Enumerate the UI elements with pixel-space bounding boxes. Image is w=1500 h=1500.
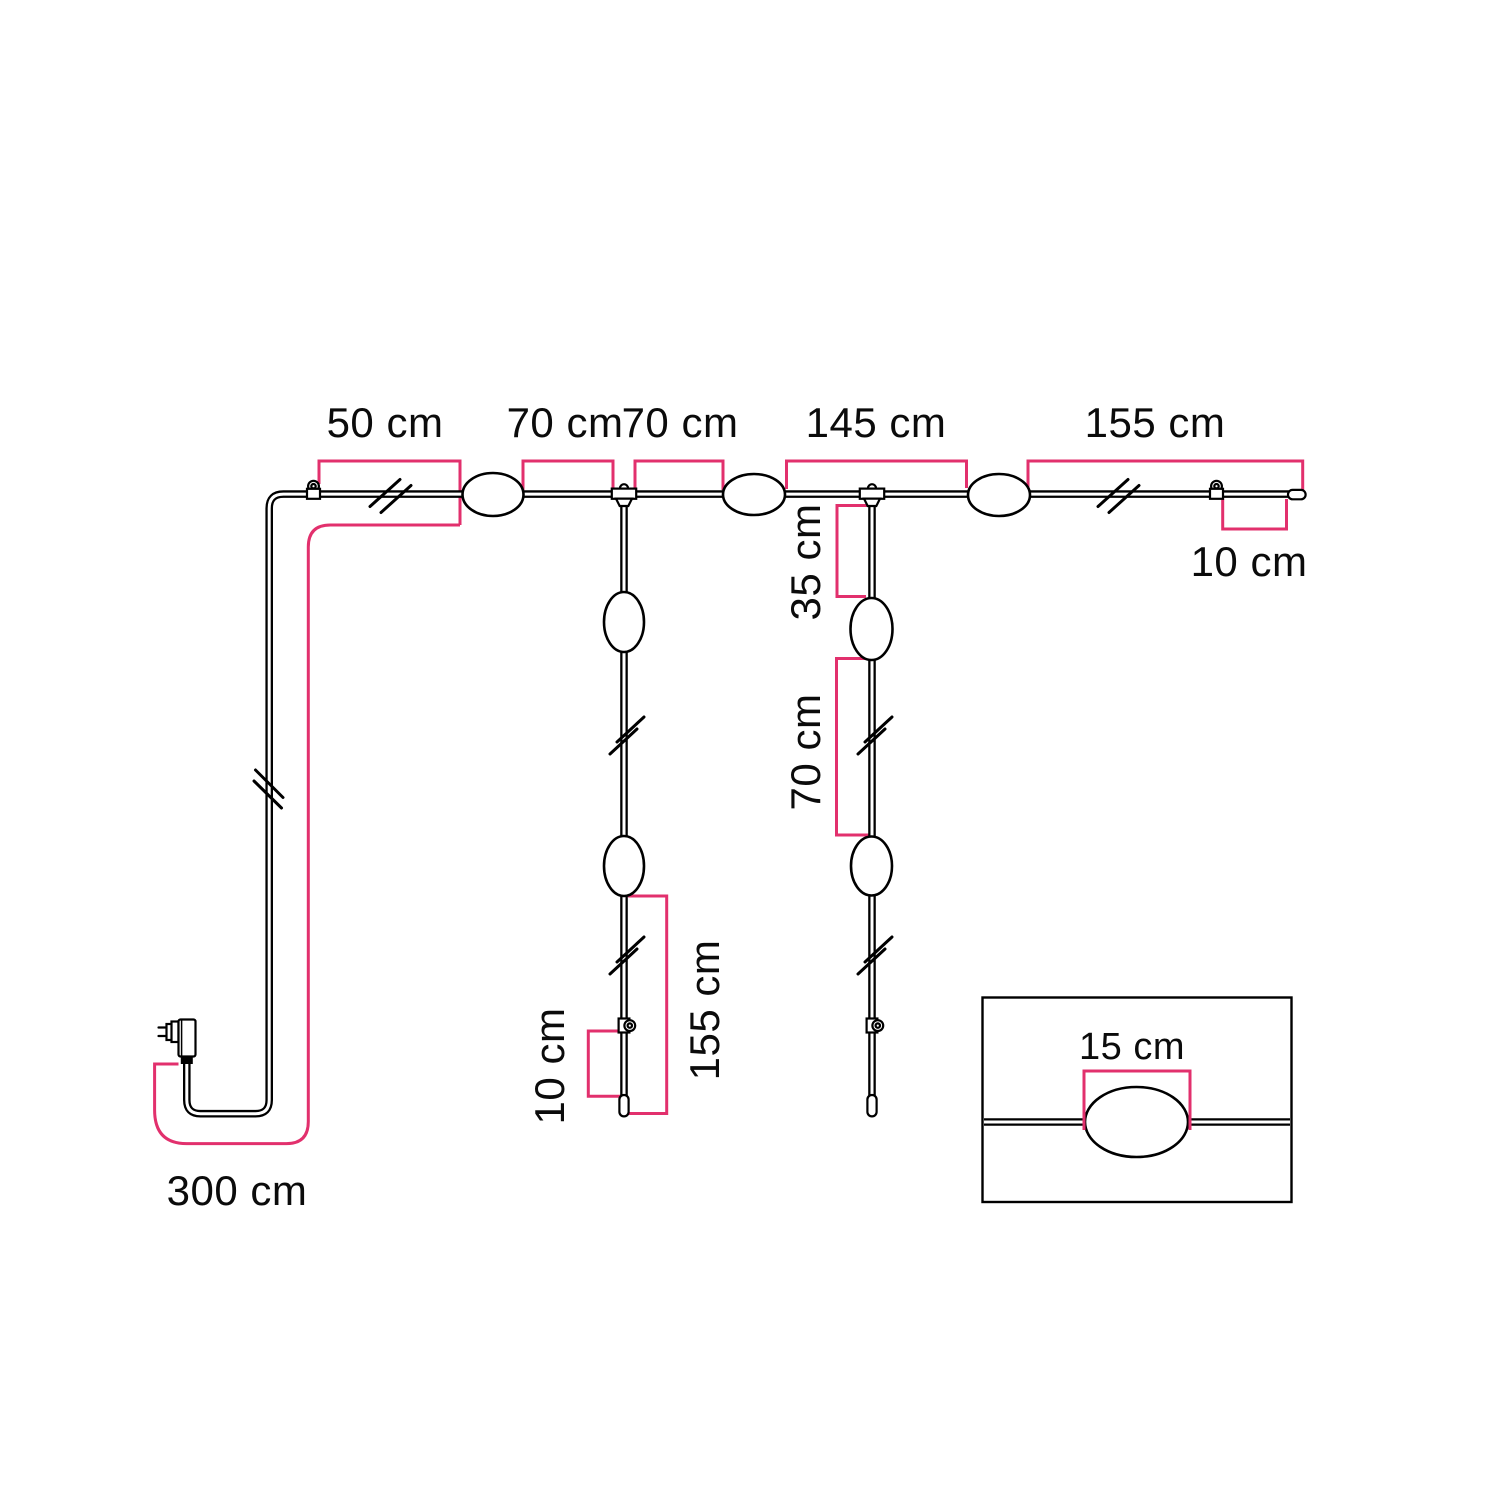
dim-label-300cm: 300 cm — [167, 1167, 308, 1214]
dim-label-70cm-b: 70 cm — [622, 399, 739, 446]
dim-bracket-155cm — [1028, 461, 1303, 490]
dim-label-155cm: 155 cm — [1085, 399, 1226, 446]
lamp-1 — [463, 473, 524, 516]
dim-label-10cm-drop: 10 cm — [526, 1008, 573, 1125]
wall-hook-right-icon — [1210, 481, 1223, 499]
end-cap-drop2 — [867, 1095, 876, 1116]
dim-path-300cm — [155, 525, 460, 1144]
drop1-clip-icon — [619, 1019, 636, 1033]
dim-label-70cm-drop: 70 cm — [782, 694, 829, 811]
dim-bracket-70cm-a — [523, 461, 613, 490]
dim-label-35cm-drop: 35 cm — [782, 504, 829, 621]
string-light-measurement-diagram: 15 cm 50 cm 70 cm 70 cm 145 cm 155 cm 10… — [0, 0, 1500, 1500]
dim-bracket-10cm-end — [1223, 499, 1287, 530]
drop2-lamp-upper — [851, 598, 893, 660]
dim-bracket-10cm-drop — [588, 1031, 621, 1096]
dim-label-155cm-drop: 155 cm — [681, 940, 728, 1081]
lamp-3 — [968, 474, 1030, 516]
dim-label-70cm-a: 70 cm — [507, 399, 624, 446]
dim-bracket-155cm-drop — [628, 896, 667, 1114]
lamp-2 — [723, 474, 785, 515]
drop1-lamp-upper — [604, 592, 644, 652]
diagram-canvas: 15 cm 50 cm 70 cm 70 cm 145 cm 155 cm 10… — [0, 0, 1500, 1500]
tee-connector-1-icon — [612, 484, 636, 506]
drop1-lamp-lower — [604, 836, 644, 896]
dim-bracket-145cm — [787, 461, 967, 489]
dim-label-10cm-end: 10 cm — [1191, 538, 1308, 585]
dim-label-50cm: 50 cm — [327, 399, 444, 446]
inset-lamp — [1085, 1087, 1188, 1157]
power-plug-icon — [159, 1020, 196, 1065]
lamp-detail-inset: 15 cm — [983, 998, 1292, 1203]
drop2-lamp-lower — [851, 837, 892, 896]
end-cap-drop1 — [619, 1095, 628, 1116]
drop2-clip-icon — [867, 1019, 884, 1033]
dim-bracket-35cm-drop — [837, 506, 869, 597]
dim-label-145cm: 145 cm — [806, 399, 947, 446]
end-cap-main — [1288, 490, 1306, 499]
cable-break-marks — [254, 480, 1139, 975]
wall-hook-left-icon — [307, 481, 320, 499]
dim-bracket-70cm-b — [635, 461, 723, 490]
tee-connector-2-icon — [860, 484, 884, 506]
dim-label-15cm: 15 cm — [1079, 1026, 1185, 1068]
